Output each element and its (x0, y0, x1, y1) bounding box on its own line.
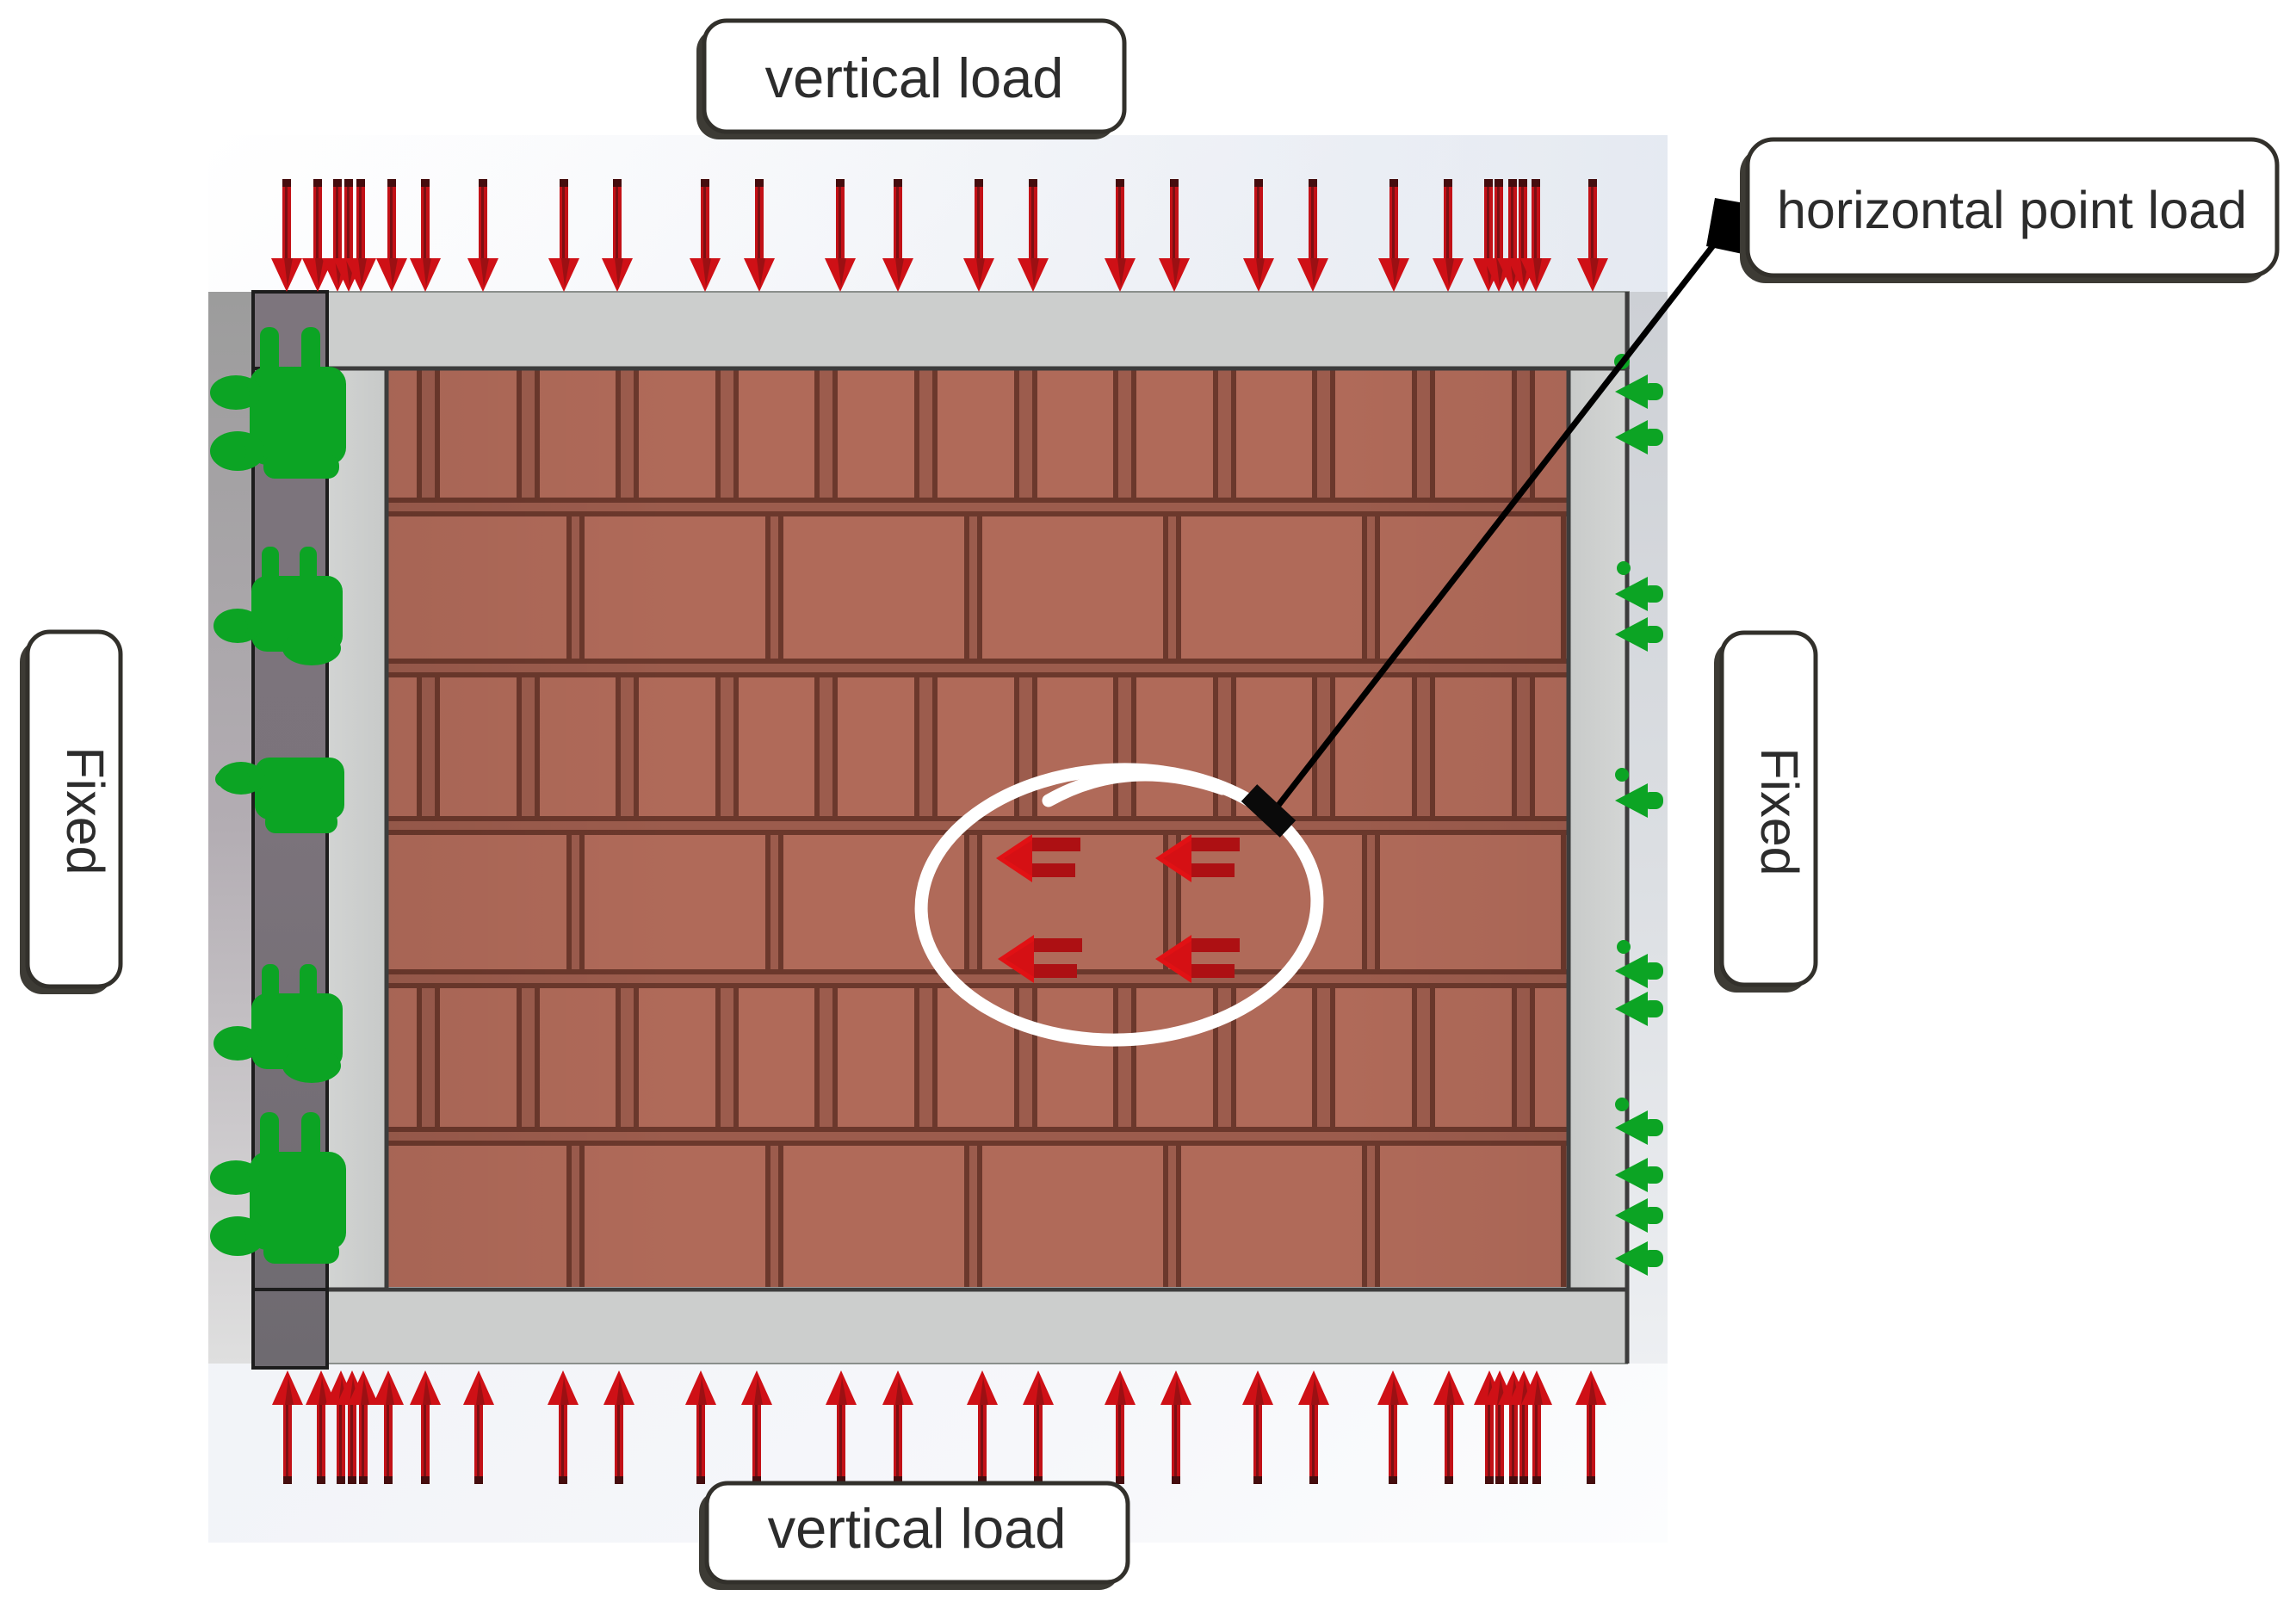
svg-text:horizontal point load: horizontal point load (1777, 181, 2247, 239)
svg-text:Fixed: Fixed (1750, 747, 1809, 875)
svg-text:vertical load: vertical load (765, 46, 1064, 109)
svg-text:Fixed: Fixed (56, 746, 114, 875)
svg-text:vertical load: vertical load (768, 1497, 1067, 1560)
